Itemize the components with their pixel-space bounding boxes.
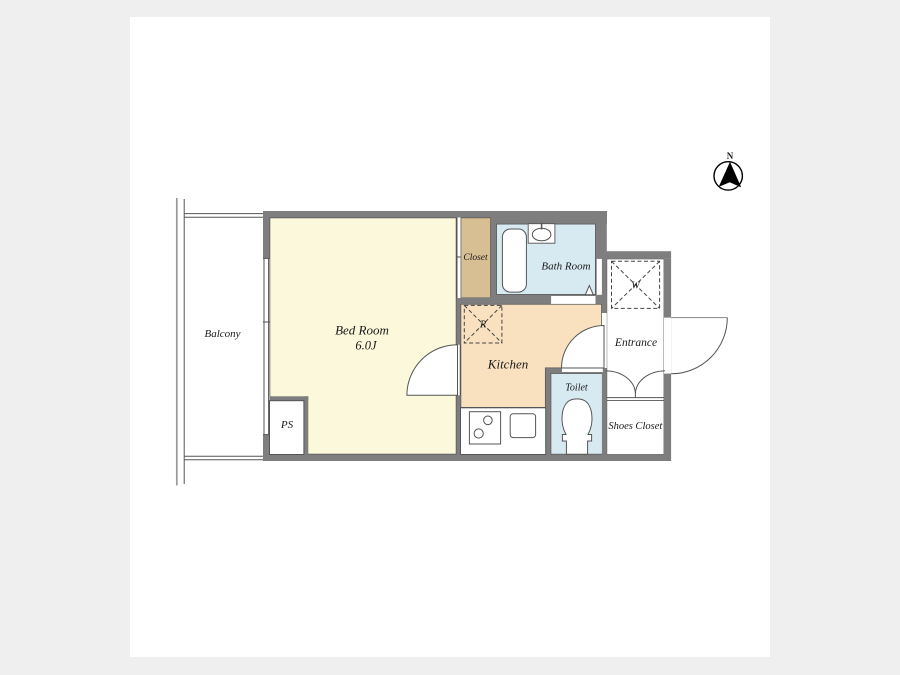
svg-text:Closet: Closet: [463, 253, 488, 263]
svg-text:Balcony: Balcony: [204, 328, 240, 340]
svg-text:6.0J: 6.0J: [355, 339, 378, 353]
svg-text:Shoes Closet: Shoes Closet: [608, 421, 663, 432]
svg-text:Kitchen: Kitchen: [487, 357, 528, 372]
svg-text:Entrance: Entrance: [614, 337, 657, 349]
svg-text:R: R: [479, 320, 486, 331]
svg-text:N: N: [727, 151, 734, 161]
svg-text:Bath Room: Bath Room: [541, 261, 590, 273]
svg-text:PS: PS: [280, 419, 294, 431]
svg-text:Toilet: Toilet: [565, 383, 588, 394]
svg-text:Bed Room: Bed Room: [335, 323, 389, 338]
